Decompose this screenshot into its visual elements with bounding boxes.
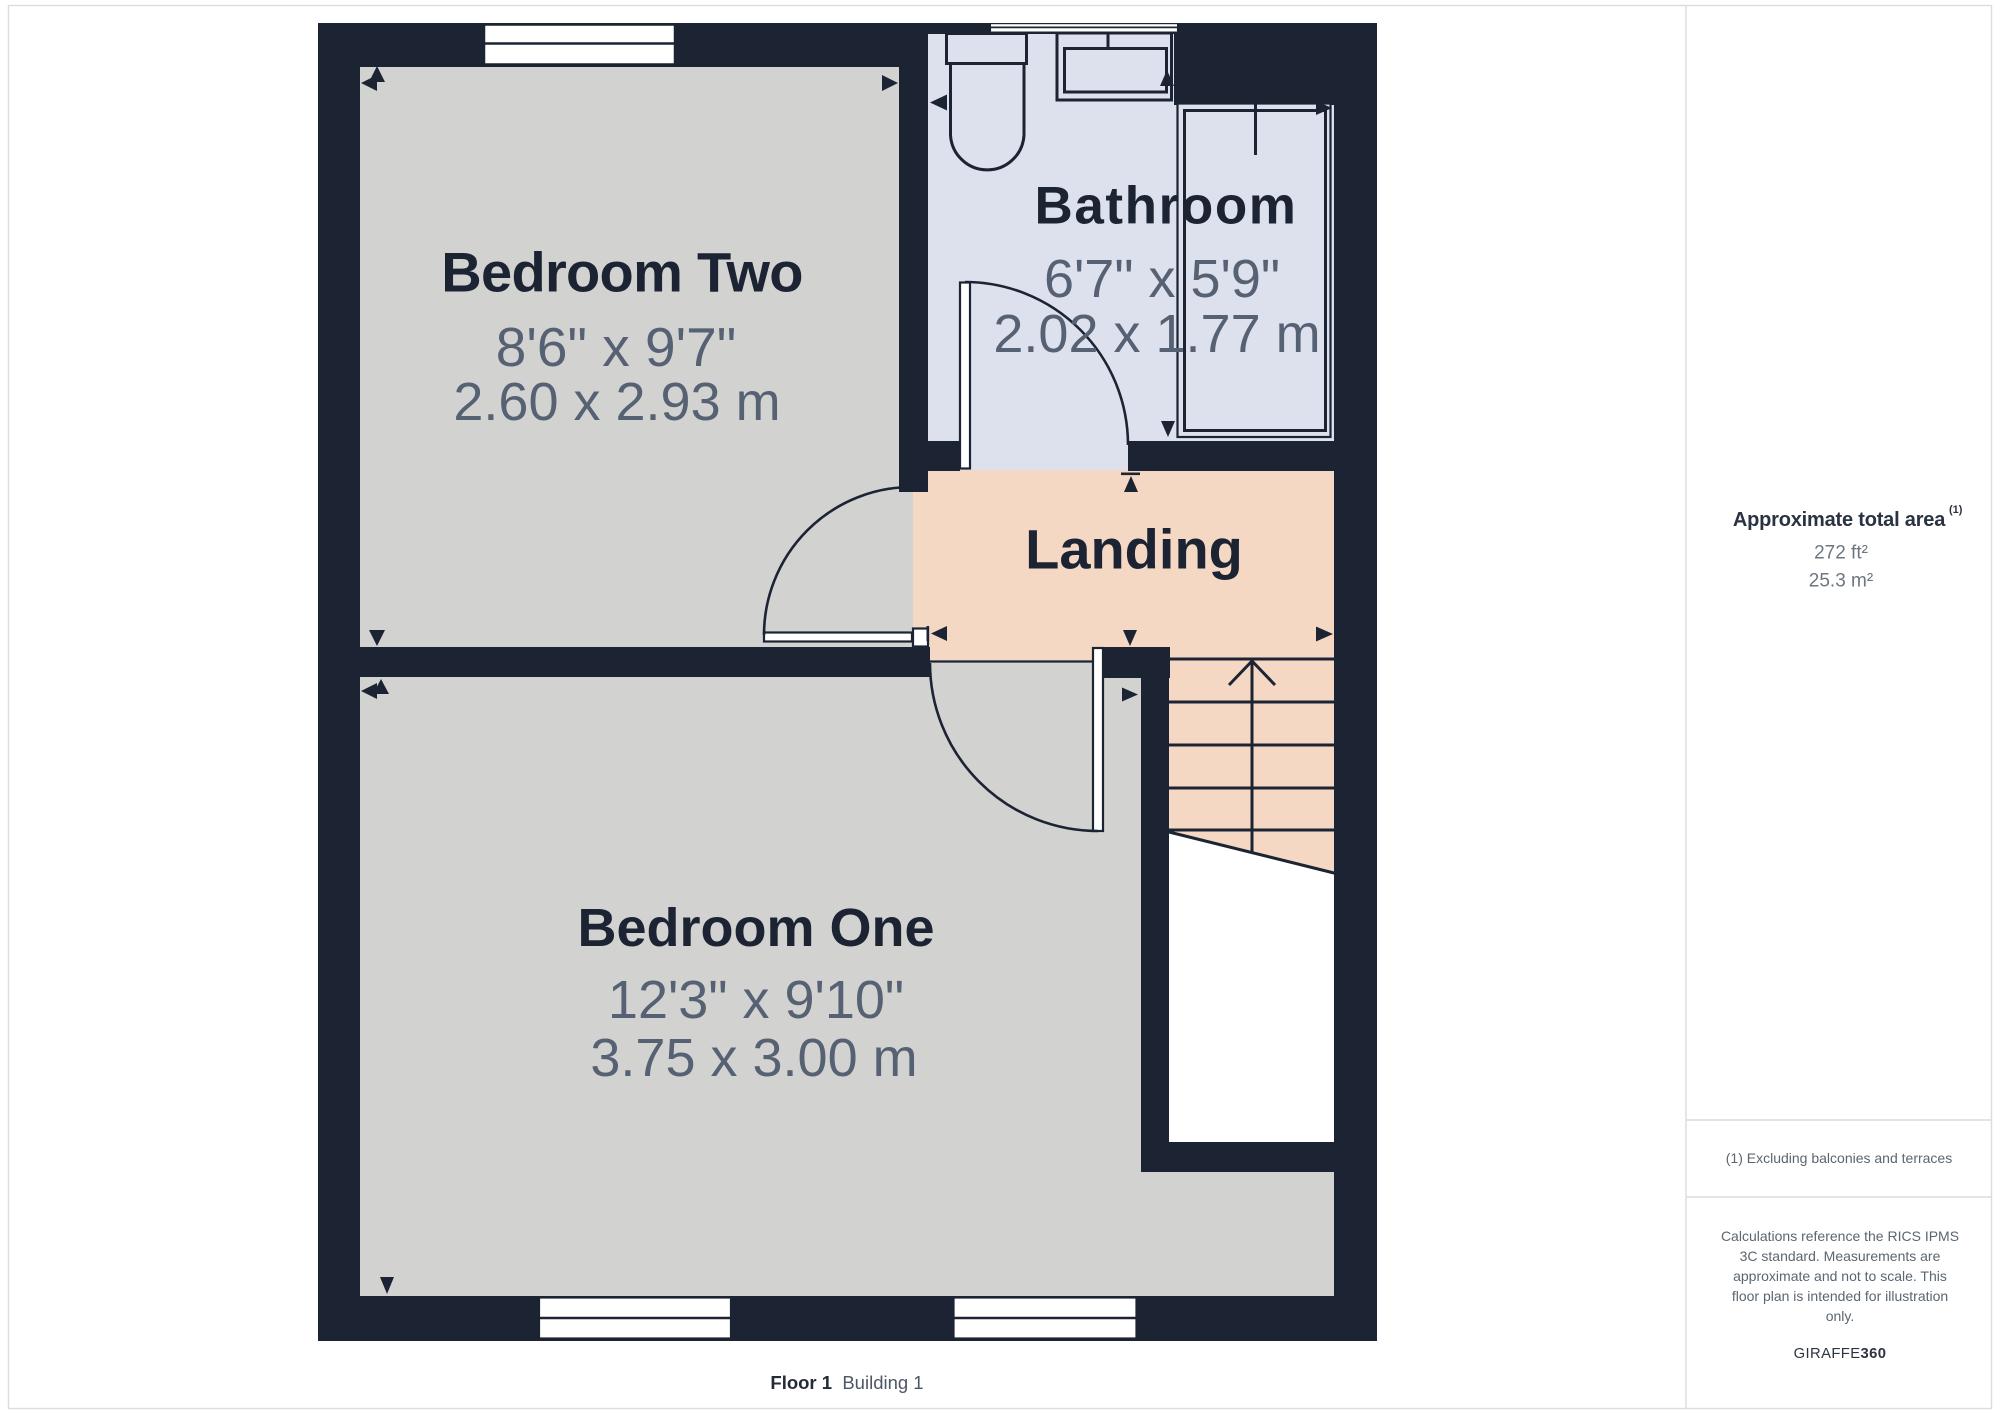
- svg-text:Floor 1 Building 1: Floor 1 Building 1: [770, 1372, 923, 1393]
- svg-text:Approximate total area: Approximate total area: [1733, 509, 1946, 531]
- svg-text:3C standard. Measurements are: 3C standard. Measurements are: [1740, 1248, 1941, 1264]
- svg-text:8'6" x 9'7": 8'6" x 9'7": [496, 316, 736, 378]
- svg-text:12'3" x 9'10": 12'3" x 9'10": [608, 970, 904, 1030]
- svg-text:approximate and not to scale.: approximate and not to scale. This: [1733, 1268, 1947, 1284]
- svg-text:272 ft²: 272 ft²: [1814, 543, 1868, 564]
- svg-text:(1): (1): [1949, 504, 1963, 516]
- svg-text:Bathroom: Bathroom: [1034, 177, 1297, 236]
- svg-text:Calculations reference the RIC: Calculations reference the RICS IPMS: [1721, 1228, 1959, 1244]
- svg-text:floor plan is intended for ill: floor plan is intended for illustration: [1732, 1288, 1948, 1304]
- svg-text:Bedroom One: Bedroom One: [577, 898, 934, 958]
- svg-text:2.60 x 2.93 m: 2.60 x 2.93 m: [453, 372, 780, 432]
- svg-text:only.: only.: [1826, 1308, 1855, 1324]
- svg-text:2.02 x 1.77 m: 2.02 x 1.77 m: [993, 304, 1320, 364]
- svg-text:Bedroom Two: Bedroom Two: [441, 241, 802, 304]
- svg-text:6'7" x 5'9": 6'7" x 5'9": [1044, 249, 1280, 309]
- svg-text:Landing: Landing: [1025, 518, 1243, 581]
- svg-text:25.3 m²: 25.3 m²: [1809, 571, 1873, 592]
- svg-text:(1) Excluding balconies and te: (1) Excluding balconies and terraces: [1726, 1150, 1952, 1166]
- svg-text:GIRAFFE360: GIRAFFE360: [1794, 1346, 1887, 1362]
- svg-text:3.75 x 3.00 m: 3.75 x 3.00 m: [590, 1028, 917, 1088]
